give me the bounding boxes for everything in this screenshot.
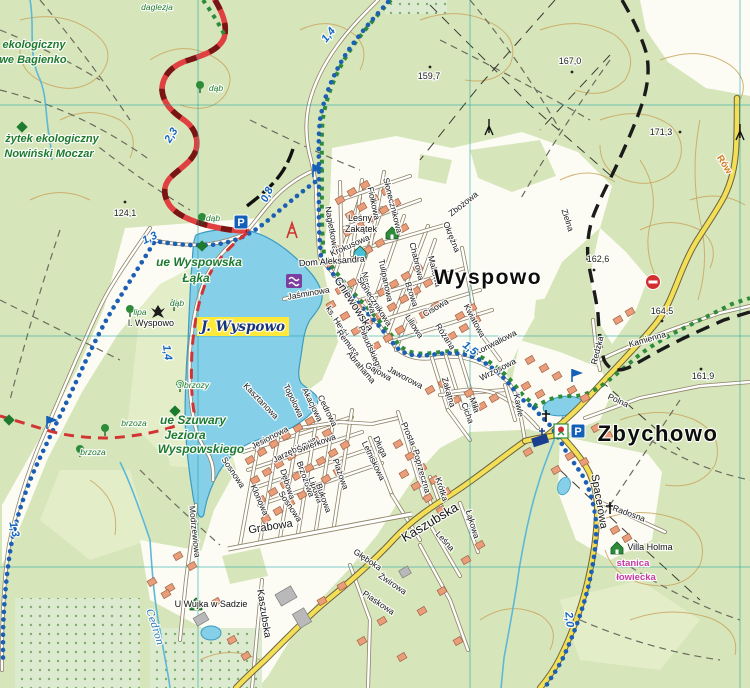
nature-reserve-label: ue Wyspowska bbox=[156, 255, 242, 269]
nature-reserve-label: Jeziora bbox=[164, 428, 206, 442]
trail-distance-marker: 1,4 bbox=[160, 344, 174, 361]
poi-label: l. Wyspowo bbox=[128, 318, 174, 328]
svg-text:P: P bbox=[237, 217, 244, 229]
shrine-icon bbox=[554, 424, 568, 438]
town-label: Zbychowo bbox=[598, 421, 719, 446]
tree-label: dąb bbox=[170, 298, 184, 308]
poi-label: Zakątek bbox=[345, 224, 378, 234]
tree-label: lipa bbox=[133, 307, 147, 317]
poi-label: Villa Holma bbox=[627, 542, 672, 552]
nature-reserve-label: Łąka bbox=[181, 271, 210, 285]
spot-height-dot bbox=[700, 368, 703, 371]
trail-distance-marker: 2,0 bbox=[562, 610, 576, 628]
parking-icon: P bbox=[571, 424, 585, 438]
tree-label: brzoza bbox=[80, 447, 106, 457]
spot-height-label: 124,1 bbox=[114, 208, 137, 218]
spot-height-dot bbox=[661, 320, 664, 323]
spot-height-dot bbox=[679, 131, 682, 134]
spot-height-dot bbox=[571, 71, 574, 74]
special-label: łowiecka bbox=[616, 572, 656, 583]
nature-reserve-label: ekologiczny bbox=[3, 39, 67, 51]
spot-height-label: 171,3 bbox=[650, 127, 673, 137]
parking-icon: P bbox=[234, 215, 248, 229]
spot-height-label: 161,9 bbox=[692, 371, 715, 381]
spot-height-dot bbox=[124, 201, 127, 204]
nature-reserve-label: żytek ekologiczny bbox=[4, 133, 99, 145]
svg-text:P: P bbox=[574, 426, 581, 438]
tree-label: daglezja bbox=[141, 2, 173, 12]
poi-label: Leśny bbox=[348, 213, 373, 223]
spot-height-label: 167,0 bbox=[559, 56, 582, 66]
spot-height-label: 164,5 bbox=[651, 306, 674, 316]
tree-label: 3 brzozy bbox=[177, 380, 210, 390]
nature-reserve-label: Nowiński Moczar bbox=[4, 148, 94, 160]
map-canvas: PP ZbożowaOkrężnaZielnaSłonecznikowaFioł… bbox=[0, 0, 750, 688]
poi-label: U Wujka w Sadzie bbox=[175, 599, 248, 609]
tree-label: dąb bbox=[209, 83, 223, 93]
spot-height-dot bbox=[429, 66, 432, 69]
swim-icon bbox=[286, 274, 302, 288]
special-label: stanica bbox=[617, 558, 650, 569]
nature-reserve-label: we Bagienko bbox=[0, 54, 67, 66]
lake-name-label: J. Wyspowo bbox=[198, 319, 285, 335]
town-label: Wyspowo bbox=[434, 266, 542, 289]
tree-label: brzoza bbox=[121, 418, 147, 428]
tree-label: dąb bbox=[206, 213, 220, 223]
noentry-icon bbox=[646, 275, 661, 290]
nature-reserve-label: Wyspowskiego bbox=[158, 442, 244, 456]
spot-height-dot bbox=[593, 269, 596, 272]
spot-height-label: 159,7 bbox=[418, 71, 441, 81]
topographic-map[interactable]: PP ZbożowaOkrężnaZielnaSłonecznikowaFioł… bbox=[0, 0, 750, 688]
spot-height-label: 162,6 bbox=[587, 254, 610, 264]
nature-reserve-label: ue Szuwary bbox=[160, 413, 227, 427]
